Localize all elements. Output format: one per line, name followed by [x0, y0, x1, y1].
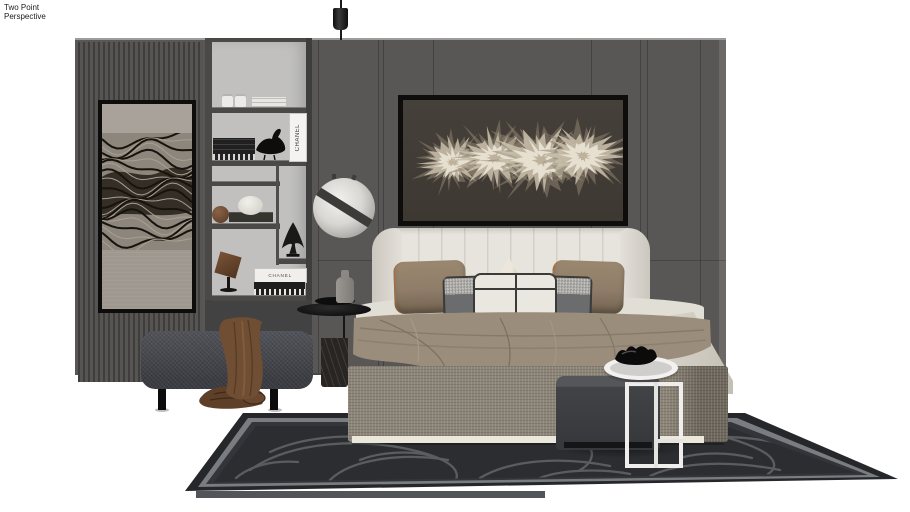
camera-label-line1: Two Point — [4, 3, 46, 12]
wall-top-edge — [75, 38, 726, 40]
sphere-decor[interactable] — [212, 206, 229, 223]
flower-art — [403, 100, 623, 221]
cube-base — [220, 288, 237, 292]
camera-label-line2: Perspective — [4, 12, 46, 21]
book-stack-flat[interactable] — [252, 97, 286, 107]
framed-artwork[interactable] — [398, 95, 628, 226]
globe-lamp-fitting — [332, 174, 336, 179]
shelf-frame — [205, 38, 312, 42]
bookshelf[interactable]: CHANEL CHANEL — [205, 38, 312, 335]
canister-decor[interactable] — [222, 94, 233, 107]
canister-decor[interactable] — [235, 94, 246, 107]
wall-right-edge — [719, 40, 726, 372]
book-stack-text: CHANEL — [269, 273, 293, 278]
wall-art-left-lower — [102, 250, 192, 309]
book-pages — [213, 154, 255, 160]
wave-art — [102, 133, 192, 250]
wall-art-left[interactable] — [98, 100, 196, 313]
dark-book-stack[interactable] — [254, 282, 305, 295]
vase[interactable] — [336, 277, 354, 303]
egg-decor[interactable] — [238, 196, 263, 215]
pendant-light[interactable] — [333, 8, 348, 30]
throw-blanket[interactable] — [196, 316, 306, 414]
decor-bowl[interactable] — [611, 341, 661, 369]
shelf-frame — [205, 38, 212, 335]
chanel-book-vertical[interactable]: CHANEL — [289, 113, 307, 162]
rug-front-edge — [196, 491, 545, 498]
chanel-book-stack[interactable]: CHANEL — [254, 268, 307, 283]
side-table-white-stretcher — [656, 439, 683, 443]
eagle-sculpture[interactable] — [279, 219, 307, 259]
marble-pedestal[interactable] — [321, 338, 348, 387]
side-table-stem — [343, 314, 345, 340]
pendant-cord — [340, 30, 342, 40]
sketchup-viewport[interactable]: Two Point Perspective — [0, 0, 910, 512]
black-book-stack[interactable] — [213, 138, 255, 160]
cube-body — [214, 251, 241, 278]
shelf-bar — [212, 223, 280, 229]
shelf-frame — [306, 38, 312, 335]
book-pages — [254, 289, 305, 295]
globe-lamp-band — [313, 181, 375, 236]
camera-mode-label: Two Point Perspective — [4, 3, 46, 21]
artwork-canvas — [403, 100, 623, 221]
side-table-white-leg — [654, 382, 658, 468]
book-spine-text: CHANEL — [295, 124, 301, 151]
pillow-piping — [515, 275, 517, 288]
eames-bird-sculpture[interactable] — [253, 124, 287, 160]
cube-sculpture[interactable] — [212, 251, 248, 297]
shelf-bar — [212, 181, 280, 186]
globe-lamp[interactable] — [313, 178, 375, 238]
vase-neck — [341, 270, 349, 279]
